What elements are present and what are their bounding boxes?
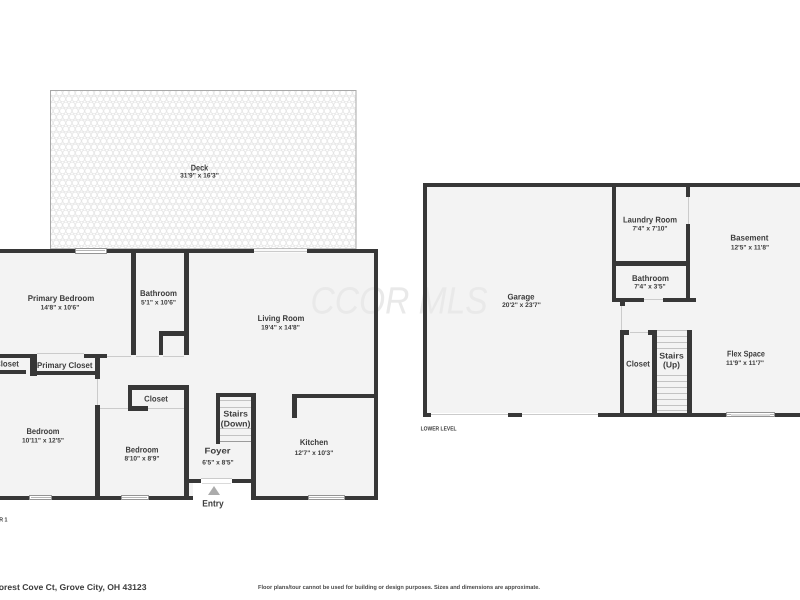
svg-text:7'4" x 3'5": 7'4" x 3'5" [634,283,665,290]
svg-text:Bedroom: Bedroom [126,445,159,455]
svg-text:Bathroom: Bathroom [140,288,177,298]
svg-text:12'7" x 10'3": 12'7" x 10'3" [295,450,334,457]
svg-text:11'9" x 11'7": 11'9" x 11'7" [726,360,764,367]
svg-text:Foyer: Foyer [205,446,232,456]
svg-text:7'4" x 7'10": 7'4" x 7'10" [632,225,667,232]
svg-text:Kitchen: Kitchen [300,437,328,447]
svg-text:Deck: Deck [191,162,209,172]
svg-text:31'9" x 16'3": 31'9" x 16'3" [180,173,219,180]
svg-text:Bedroom: Bedroom [27,426,60,436]
svg-text:Closet: Closet [626,359,650,369]
svg-text:Entry: Entry [202,499,224,509]
svg-text:Stairs: Stairs [223,409,248,419]
svg-text:(Up): (Up) [663,359,680,369]
svg-text:FLOOR 1: FLOOR 1 [0,517,8,524]
svg-text:Forest Cove Ct, Grove City, OH: Forest Cove Ct, Grove City, OH 43123 [0,582,147,592]
svg-text:19'4" x 14'8": 19'4" x 14'8" [261,324,300,331]
svg-text:Basement: Basement [730,233,768,243]
svg-text:Closet: Closet [0,359,19,369]
svg-text:Closet: Closet [144,394,168,404]
svg-text:20'2" x 23'7": 20'2" x 23'7" [502,302,541,309]
svg-text:6'5" x 8'5": 6'5" x 8'5" [202,459,233,466]
svg-text:Primary Bedroom: Primary Bedroom [28,293,95,303]
svg-text:8'10" x 8'9": 8'10" x 8'9" [124,455,159,462]
svg-text:12'5" x 11'8": 12'5" x 11'8" [731,244,769,251]
svg-text:LOWER LEVEL: LOWER LEVEL [421,425,457,432]
svg-text:14'8" x 10'6": 14'8" x 10'6" [41,304,80,311]
svg-text:10'11" x 12'5": 10'11" x 12'5" [22,437,64,444]
svg-text:Primary Closet: Primary Closet [37,360,93,370]
svg-text:Floor plans/tour cannot be use: Floor plans/tour cannot be used for buil… [258,584,540,591]
svg-text:Flex Space: Flex Space [727,349,765,359]
svg-text:(Down): (Down) [221,418,251,428]
svg-text:Bathroom: Bathroom [632,273,669,283]
svg-text:Living Room: Living Room [258,313,305,323]
svg-text:Garage: Garage [507,292,534,302]
svg-text:Laundry Room: Laundry Room [623,215,677,225]
svg-text:5'1" x 10'6": 5'1" x 10'6" [141,300,176,307]
